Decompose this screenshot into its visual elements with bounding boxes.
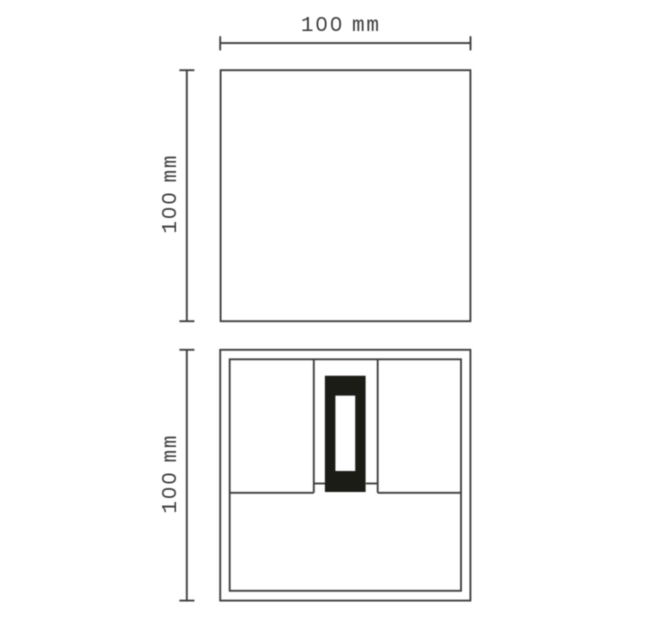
svg-text:mm: mm [160,154,183,183]
svg-text:mm: mm [352,15,381,38]
svg-text:mm: mm [160,434,183,463]
